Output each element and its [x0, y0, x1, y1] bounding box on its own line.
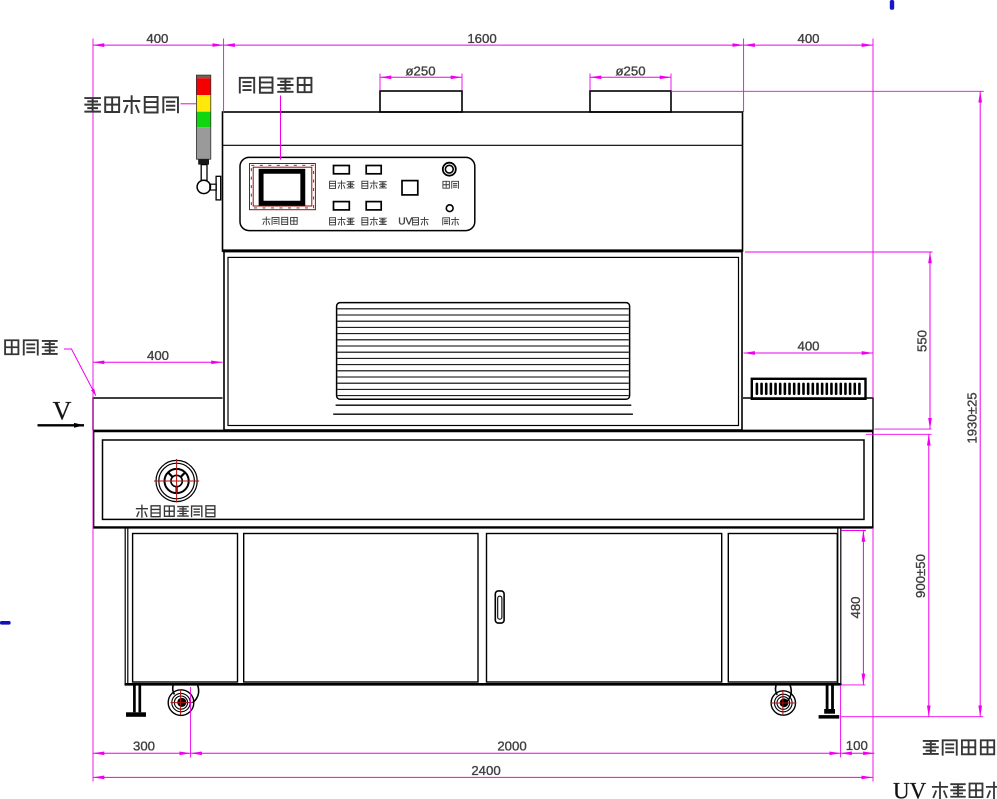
svg-text:2000: 2000	[497, 739, 526, 754]
svg-text:2400: 2400	[471, 763, 500, 778]
svg-text:900±50: 900±50	[913, 554, 928, 598]
svg-text:1930±25: 1930±25	[965, 392, 980, 443]
svg-text:ø250: ø250	[405, 63, 435, 78]
svg-text:300: 300	[133, 739, 155, 754]
svg-text:480: 480	[848, 596, 863, 618]
svg-text:ø250: ø250	[615, 63, 645, 78]
svg-text:100: 100	[846, 738, 868, 753]
svg-text:400: 400	[797, 31, 819, 46]
svg-text:UV: UV	[893, 778, 927, 799]
svg-text:400: 400	[146, 31, 168, 46]
svg-text:1600: 1600	[467, 31, 496, 46]
svg-text:400: 400	[797, 339, 819, 354]
svg-text:UV: UV	[398, 217, 412, 228]
svg-text:V: V	[53, 397, 72, 426]
svg-text:550: 550	[915, 330, 930, 352]
svg-text:400: 400	[147, 348, 169, 363]
